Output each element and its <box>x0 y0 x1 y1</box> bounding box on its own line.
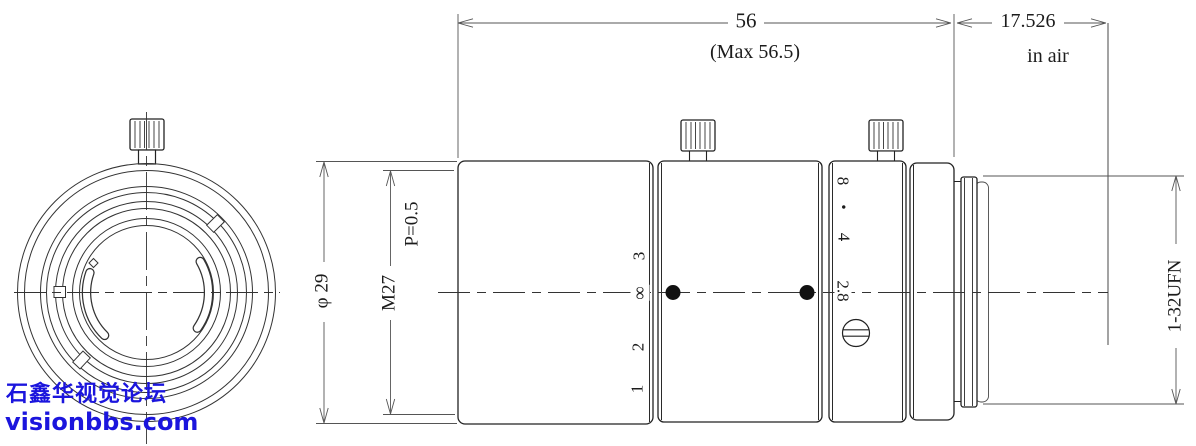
index-dot <box>666 285 681 300</box>
side-view <box>438 120 1108 424</box>
dim-thread-pitch: P=0.5 <box>403 201 422 246</box>
index-dot <box>800 285 815 300</box>
dim-flange-note: in air <box>1027 46 1069 66</box>
arc-slot-right <box>197 262 208 329</box>
arc-slot-left <box>87 273 105 336</box>
side-thumbscrew-icon <box>869 120 903 162</box>
ring-notch <box>54 287 66 298</box>
drawing-geometry <box>0 0 1196 446</box>
dim-length-main: 56 <box>733 11 760 32</box>
lens-technical-drawing: 56 (Max 56.5) 17.526 in air φ 29 M27 P=0… <box>0 0 1196 446</box>
focus-scale-mark-infinity: ∞ <box>631 285 650 301</box>
dim-flange-distance: 17.526 <box>998 11 1059 31</box>
dim-outer-diameter: φ 29 <box>313 271 332 312</box>
aperture-scale-mark: 8 <box>835 177 852 186</box>
dim-length-max: (Max 56.5) <box>710 42 800 62</box>
rear-block <box>910 163 954 420</box>
watermark-line1: 石鑫华视觉论坛 <box>6 384 167 406</box>
mount-flange <box>961 177 977 407</box>
dim-mount-thread: 1-32UFN <box>1166 257 1185 336</box>
focus-scale-mark: 2 <box>630 343 647 352</box>
focus-scale-mark: 1 <box>629 385 646 394</box>
slotted-screw-icon <box>843 320 870 347</box>
index-diamond <box>89 259 98 268</box>
ring-notch <box>73 351 91 369</box>
body-block <box>658 161 822 422</box>
dim-filter-thread: M27 <box>380 272 399 314</box>
aperture-scale-mark: 2.8 <box>835 279 852 302</box>
side-thumbscrew-icon <box>681 120 715 162</box>
front-thumbscrew-icon <box>130 119 164 164</box>
aperture-scale-dot: • <box>835 204 850 209</box>
focus-scale-mark: 3 <box>631 252 648 261</box>
watermark-line2: visionbbs.com <box>5 410 198 434</box>
aperture-scale-mark: 4 <box>836 233 853 242</box>
